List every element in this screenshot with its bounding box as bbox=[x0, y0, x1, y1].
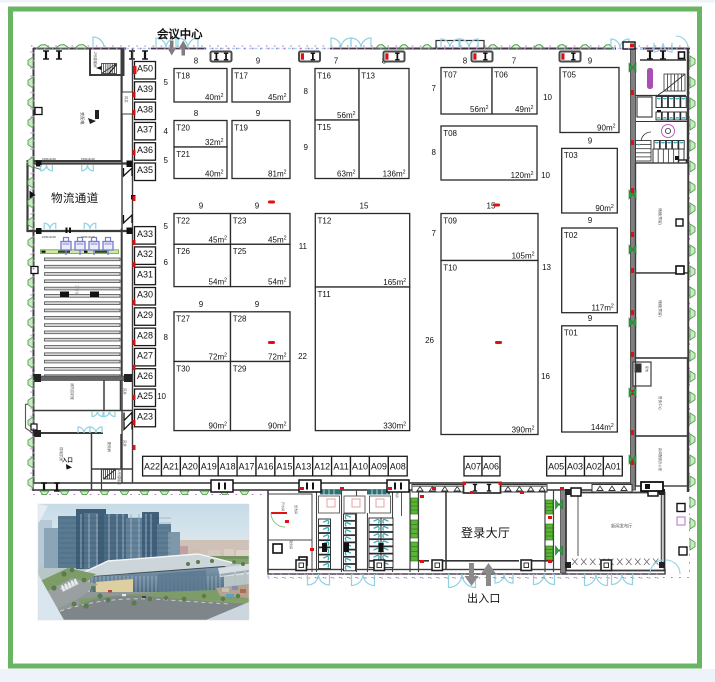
svg-text:风井: 风井 bbox=[124, 96, 129, 103]
svg-text:新闻发布厅: 新闻发布厅 bbox=[611, 523, 633, 530]
svg-text:物流通道: 物流通道 bbox=[51, 191, 99, 205]
svg-text:7: 7 bbox=[432, 84, 437, 93]
svg-text:8: 8 bbox=[194, 109, 199, 118]
svg-text:A12: A12 bbox=[314, 462, 330, 472]
svg-text:1500x2100: 1500x2100 bbox=[42, 235, 56, 239]
svg-text:A01: A01 bbox=[605, 462, 621, 472]
svg-text:T16: T16 bbox=[317, 71, 331, 80]
svg-text:变配电: 变配电 bbox=[79, 112, 86, 125]
svg-text:T08: T08 bbox=[443, 129, 457, 138]
svg-text:入口: 入口 bbox=[62, 457, 73, 464]
svg-text:A17: A17 bbox=[239, 462, 255, 472]
svg-text:消防控制室: 消防控制室 bbox=[70, 383, 75, 401]
svg-text:8: 8 bbox=[463, 57, 468, 66]
svg-text:售卖中心: 售卖中心 bbox=[658, 396, 663, 411]
svg-text:T28: T28 bbox=[233, 315, 247, 324]
svg-text:136m2: 136m2 bbox=[383, 170, 406, 179]
svg-text:T11: T11 bbox=[318, 290, 332, 299]
svg-text:9: 9 bbox=[588, 216, 593, 225]
svg-text:9: 9 bbox=[588, 137, 593, 146]
svg-text:A31: A31 bbox=[137, 269, 153, 279]
svg-text:9: 9 bbox=[255, 300, 260, 309]
svg-text:9: 9 bbox=[256, 109, 261, 118]
svg-text:T23: T23 bbox=[233, 216, 247, 225]
svg-text:T10: T10 bbox=[443, 263, 457, 272]
svg-text:A02: A02 bbox=[586, 462, 602, 472]
svg-text:A13: A13 bbox=[295, 462, 311, 472]
svg-text:风井: 风井 bbox=[395, 492, 400, 498]
svg-text:A30: A30 bbox=[137, 290, 153, 300]
svg-text:A06: A06 bbox=[483, 462, 499, 472]
svg-text:T25: T25 bbox=[233, 247, 247, 256]
svg-text:A33: A33 bbox=[137, 229, 153, 239]
svg-text:22: 22 bbox=[298, 352, 307, 361]
svg-text:7: 7 bbox=[334, 57, 339, 66]
svg-text:配电间: 配电间 bbox=[107, 442, 112, 453]
svg-text:9: 9 bbox=[199, 202, 204, 211]
svg-text:9: 9 bbox=[588, 314, 593, 323]
svg-text:165m2: 165m2 bbox=[383, 278, 406, 287]
svg-text:7: 7 bbox=[512, 57, 517, 66]
svg-text:新闻配套办公室: 新闻配套办公室 bbox=[658, 448, 663, 472]
svg-text:盥洗间: 盥洗间 bbox=[294, 505, 299, 514]
svg-text:会议中心: 会议中心 bbox=[157, 27, 203, 41]
svg-text:2号楼梯间: 2号楼梯间 bbox=[93, 52, 98, 68]
svg-text:5: 5 bbox=[164, 78, 169, 87]
svg-text:T06: T06 bbox=[494, 70, 508, 79]
svg-text:风井: 风井 bbox=[123, 440, 128, 447]
svg-text:8: 8 bbox=[304, 87, 309, 96]
svg-text:10: 10 bbox=[157, 392, 166, 401]
svg-text:A32: A32 bbox=[137, 249, 153, 259]
svg-text:A09: A09 bbox=[371, 462, 387, 472]
svg-text:T30: T30 bbox=[176, 364, 190, 373]
svg-text:6: 6 bbox=[164, 258, 169, 267]
svg-text:T20: T20 bbox=[176, 123, 190, 132]
svg-text:T09: T09 bbox=[443, 216, 457, 225]
svg-text:A22: A22 bbox=[144, 462, 160, 472]
svg-text:8: 8 bbox=[432, 148, 437, 157]
svg-text:9: 9 bbox=[199, 300, 204, 309]
svg-text:T21: T21 bbox=[176, 150, 190, 159]
svg-text:16: 16 bbox=[541, 372, 550, 381]
svg-text:T01: T01 bbox=[564, 329, 578, 338]
svg-text:T17: T17 bbox=[234, 71, 248, 80]
svg-text:11: 11 bbox=[299, 242, 308, 251]
svg-text:T29: T29 bbox=[233, 364, 247, 373]
svg-text:服务间: 服务间 bbox=[289, 540, 294, 549]
svg-text:10: 10 bbox=[543, 93, 552, 102]
svg-text:5: 5 bbox=[164, 222, 169, 231]
svg-text:A38: A38 bbox=[137, 104, 153, 114]
svg-text:T03: T03 bbox=[564, 151, 578, 160]
svg-text:登录大厅: 登录大厅 bbox=[461, 525, 510, 540]
svg-text:9: 9 bbox=[256, 57, 261, 66]
svg-text:A07: A07 bbox=[465, 462, 481, 472]
svg-text:A08: A08 bbox=[390, 462, 406, 472]
svg-text:9: 9 bbox=[588, 57, 593, 66]
svg-text:A23: A23 bbox=[137, 412, 153, 422]
svg-text:T15: T15 bbox=[317, 123, 331, 132]
svg-text:7: 7 bbox=[432, 229, 437, 238]
svg-text:9: 9 bbox=[255, 202, 260, 211]
svg-text:T26: T26 bbox=[176, 247, 190, 256]
svg-text:9: 9 bbox=[304, 143, 309, 152]
svg-text:15: 15 bbox=[360, 202, 369, 211]
svg-text:风井: 风井 bbox=[123, 388, 128, 395]
svg-text:T02: T02 bbox=[564, 231, 578, 240]
svg-text:A37: A37 bbox=[137, 125, 153, 135]
svg-text:储藏(预留): 储藏(预留) bbox=[658, 208, 663, 225]
svg-text:A18: A18 bbox=[220, 462, 236, 472]
svg-text:A29: A29 bbox=[137, 310, 153, 320]
svg-text:A10: A10 bbox=[352, 462, 368, 472]
svg-text:390m2: 390m2 bbox=[512, 426, 535, 435]
svg-text:1号楼梯间: 1号楼梯间 bbox=[117, 470, 122, 485]
svg-text:主席台: 主席台 bbox=[75, 285, 80, 295]
svg-text:8: 8 bbox=[164, 333, 169, 342]
svg-text:8: 8 bbox=[194, 57, 199, 66]
svg-text:A26: A26 bbox=[137, 371, 153, 381]
svg-text:出入口: 出入口 bbox=[467, 591, 501, 605]
svg-text:T27: T27 bbox=[176, 315, 190, 324]
svg-text:T07: T07 bbox=[443, 70, 457, 79]
svg-text:A03: A03 bbox=[567, 462, 583, 472]
svg-text:A36: A36 bbox=[137, 145, 153, 155]
svg-text:A28: A28 bbox=[137, 330, 153, 340]
svg-text:A05: A05 bbox=[548, 462, 564, 472]
svg-text:144m2: 144m2 bbox=[591, 423, 614, 432]
svg-text:330m2: 330m2 bbox=[383, 422, 406, 431]
svg-text:1500x2100: 1500x2100 bbox=[42, 157, 56, 161]
svg-text:T13: T13 bbox=[361, 71, 375, 80]
svg-text:13: 13 bbox=[542, 263, 551, 272]
svg-text:A16: A16 bbox=[257, 462, 273, 472]
svg-text:1500x2100: 1500x2100 bbox=[81, 157, 95, 161]
svg-text:105m2: 105m2 bbox=[512, 252, 535, 261]
svg-text:T22: T22 bbox=[176, 216, 190, 225]
svg-text:T18: T18 bbox=[176, 71, 190, 80]
svg-text:A21: A21 bbox=[163, 462, 179, 472]
svg-text:120m2: 120m2 bbox=[511, 171, 534, 180]
svg-text:储藏(预留): 储藏(预留) bbox=[658, 300, 663, 317]
svg-text:5: 5 bbox=[164, 156, 169, 165]
svg-text:A25: A25 bbox=[137, 391, 153, 401]
svg-text:A19: A19 bbox=[201, 462, 217, 472]
svg-text:26: 26 bbox=[425, 336, 434, 345]
svg-text:117m2: 117m2 bbox=[591, 304, 613, 313]
svg-text:A27: A27 bbox=[137, 351, 153, 361]
svg-text:10: 10 bbox=[541, 171, 550, 180]
svg-text:T12: T12 bbox=[318, 216, 332, 225]
svg-text:A11: A11 bbox=[333, 462, 348, 472]
svg-text:A35: A35 bbox=[137, 165, 153, 175]
svg-text:A20: A20 bbox=[182, 462, 198, 472]
svg-text:T05: T05 bbox=[562, 70, 576, 79]
svg-text:配电: 配电 bbox=[645, 366, 650, 372]
svg-text:A15: A15 bbox=[276, 462, 292, 472]
svg-text:开水间: 开水间 bbox=[281, 502, 286, 511]
svg-text:T19: T19 bbox=[234, 123, 248, 132]
svg-text:A50: A50 bbox=[137, 64, 153, 74]
svg-text:A39: A39 bbox=[137, 84, 153, 94]
svg-text:4: 4 bbox=[164, 127, 169, 136]
